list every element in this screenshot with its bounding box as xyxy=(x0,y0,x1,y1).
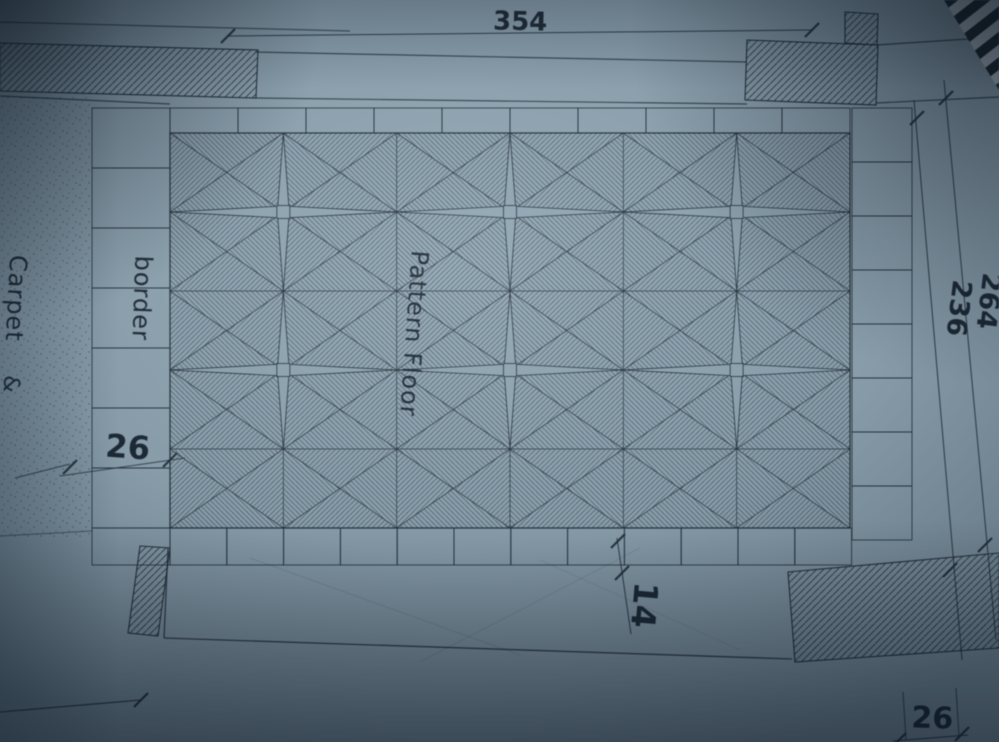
carpet-area-label: Carpet xyxy=(0,254,32,342)
floor-plan-drawing: 354 264 236 26 14 26 border Pattern Floo… xyxy=(0,0,999,742)
floor-plan-photo: 354 264 236 26 14 26 border Pattern Floo… xyxy=(0,0,999,742)
dim-corner-width-label: 26 xyxy=(911,700,954,736)
border-area-label: border xyxy=(127,255,158,341)
dim-border-width-label: 26 xyxy=(104,427,151,468)
dim-tile-width-label: 14 xyxy=(623,580,666,629)
carpet-area-label-more: & xyxy=(0,375,23,394)
dim-top-width-label: 354 xyxy=(493,6,548,37)
